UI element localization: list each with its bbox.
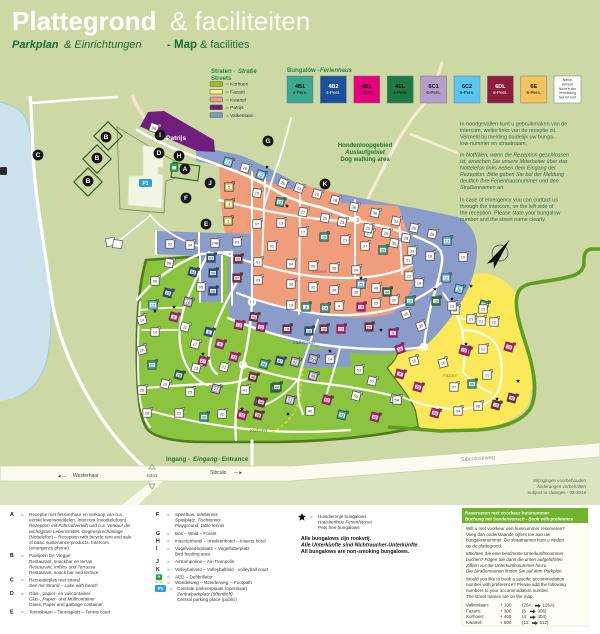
svg-text:& facilities: & facilities	[200, 39, 250, 51]
svg-text:P1: P1	[142, 181, 148, 187]
svg-text:21: 21	[343, 238, 348, 243]
svg-text:30: 30	[202, 416, 206, 420]
svg-text:06: 06	[211, 272, 215, 276]
svg-text:J: J	[156, 559, 159, 565]
svg-text:Subject to changes - 02-2019: Subject to changes - 02-2019	[527, 490, 586, 495]
svg-text:eerste levensmiddelen. Interco: eerste levensmiddelen. Intercom (noodtel…	[29, 518, 127, 523]
svg-text:—►: —►	[234, 470, 243, 475]
svg-text:Patrijs: Patrijs	[166, 135, 186, 142]
svg-text:All bungalows are non-smoking: All bungalows are non-smoking bungalows.	[301, 549, 410, 555]
svg-text:Restaurant, snack bar and terr: Restaurant, snack bar and terrace	[29, 570, 99, 575]
svg-text:Fazant: Fazant	[443, 373, 458, 378]
svg-text:30: 30	[289, 282, 294, 287]
svg-text:18: 18	[417, 281, 422, 286]
svg-text:=: =	[167, 580, 170, 585]
svg-text:(6: (6	[522, 608, 526, 613]
svg-text:Not for rent: Not for rent	[559, 96, 576, 100]
svg-text:14: 14	[323, 307, 327, 311]
svg-text:Would you like to book a speci: Would you like to book a specific accomm…	[466, 576, 565, 581]
svg-text:05: 05	[199, 285, 204, 290]
svg-text:28: 28	[145, 411, 150, 416]
svg-text:Nottelefon links neben dem Ein: Nottelefon links neben dem Eingang der	[460, 166, 556, 172]
svg-text:Vermeld bij melding duidelijk: Vermeld bij melding duidelijk uw bunga-	[460, 135, 555, 141]
svg-text:Parkplan: Parkplan	[12, 39, 59, 51]
svg-text:4-Pers.: 4-Pers.	[393, 90, 408, 95]
svg-text:buchen? Fügen Sie dann die unt: buchen? Fügen Sie dann die unten aufgefü…	[466, 557, 563, 562]
svg-text:In case of emergency you can c: In case of emergency you can contact us	[460, 198, 558, 204]
svg-text:B: B	[104, 134, 109, 141]
svg-text:See mit Strand – Lake with bea: See mit Strand – Lake with beach	[29, 583, 98, 588]
svg-text:Wilt u met voorkeur een huisnu: Wilt u met voorkeur een huisnummer reser…	[466, 526, 565, 531]
svg-text:low-nummer en straatnaam.: low-nummer en straatnaam.	[460, 141, 527, 147]
svg-text:+: +	[158, 575, 161, 581]
svg-text:Eingang: Eingang	[193, 456, 218, 463]
svg-text:13: 13	[279, 221, 284, 226]
svg-text:=: =	[167, 538, 170, 543]
svg-text:numbers to your accommodation: numbers to your accommodation number.	[466, 588, 549, 593]
svg-text:intercom, welke links van de r: intercom, welke links van de receptie zi…	[460, 128, 556, 134]
svg-text:36: 36	[354, 290, 359, 295]
svg-text:=: =	[167, 531, 170, 536]
svg-text:16: 16	[428, 254, 433, 259]
svg-text:13: 13	[445, 240, 449, 244]
svg-text:22: 22	[150, 364, 154, 368]
svg-text:Sibculo: Sibculo	[210, 470, 227, 476]
svg-text:06: 06	[251, 315, 256, 320]
svg-text:Ingang -: Ingang -	[166, 456, 190, 463]
svg-text:Bos – Wald – Forest: Bos – Wald – Forest	[175, 531, 217, 536]
svg-text:(26A: (26A	[522, 603, 532, 608]
svg-text:06: 06	[153, 279, 158, 284]
svg-text:(emergency phone): (emergency phone)	[29, 546, 69, 551]
svg-text:20: 20	[392, 298, 397, 303]
svg-text:39: 39	[381, 249, 385, 253]
svg-text:9: 9	[392, 332, 394, 336]
svg-text:08: 08	[332, 266, 337, 271]
svg-text:12: 12	[444, 277, 448, 281]
svg-text:53: 53	[357, 368, 362, 373]
svg-text:23: 23	[481, 307, 486, 312]
svg-text:+ 300: + 300	[500, 608, 512, 613]
svg-text:B: B	[95, 155, 100, 162]
svg-text:Dog walking area: Dog walking area	[340, 157, 390, 163]
svg-text:Ziffern vor die Unterkunftsnum: Ziffern vor die Unterkunftsnummer hinzu.	[465, 563, 548, 568]
svg-text:Restaurant, Imbiss und Terrass: Restaurant, Imbiss und Terrasse	[29, 564, 96, 569]
svg-text:Voeg dan onderstaande cijfers: Voeg dan onderstaande cijfers toe aan uw	[466, 532, 551, 537]
svg-text:through the intercom, on the l: through the intercom, on the left side o…	[460, 204, 554, 210]
svg-text:=: =	[167, 574, 170, 579]
svg-text:= Korhoen: = Korhoen	[226, 82, 249, 88]
svg-text:22: 22	[492, 320, 497, 325]
svg-text:D: D	[10, 591, 14, 597]
svg-text:Hondenloopgebied: Hondenloopgebied	[338, 143, 393, 149]
svg-text:G: G	[265, 138, 270, 145]
svg-text:306): 306)	[538, 608, 548, 613]
svg-text:=: =	[310, 514, 313, 519]
svg-text:-: -	[167, 39, 171, 51]
svg-text:Zentralparkplatz (öffentlich): Zentralparkplatz (öffentlich)	[176, 592, 233, 597]
svg-text:6-Pers.: 6-Pers.	[426, 90, 441, 95]
svg-text:Centrale parkeerplaats (openba: Centrale parkeerplaats (openbaar)	[177, 586, 248, 591]
svg-text:Insectenhotel – Insektenhotel: Insectenhotel – Insektenhotel – Insects …	[175, 538, 266, 543]
svg-text:H: H	[156, 538, 160, 544]
svg-text:Auslaufgebiet: Auslaufgebiet	[344, 150, 386, 156]
svg-text:Huisdiervrije bungalows: Huisdiervrije bungalows	[318, 514, 367, 519]
svg-text:K: K	[323, 181, 328, 188]
svg-text:09: 09	[470, 383, 474, 387]
svg-text:J: J	[208, 180, 212, 187]
svg-text:29: 29	[322, 328, 326, 332]
svg-text:+ 500: + 500	[500, 620, 512, 625]
svg-text:op de plattegrond.: op de plattegrond.	[466, 543, 502, 548]
svg-text:Die Straßennamen finden Sie au: Die Straßennamen finden Sie auf dem Park…	[466, 569, 563, 574]
svg-text:6-Pers.: 6-Pers.	[460, 90, 475, 95]
svg-text:32: 32	[311, 285, 316, 290]
svg-text:07: 07	[235, 277, 239, 281]
svg-text:In Notfällen, wenn die Rezepti: In Notfällen, wenn die Rezeption geschlo…	[460, 153, 569, 159]
svg-text:21: 21	[406, 258, 411, 263]
svg-text:Rezeption. Bitte geben Sie bei: Rezeption. Bitte geben Sie bei der Meldu…	[460, 172, 564, 178]
svg-text:= Kwartel: = Kwartel	[226, 97, 246, 103]
svg-text:4-Pers.: 4-Pers.	[293, 90, 308, 95]
svg-text:deutlich Ihre Ferienhausnummer: deutlich Ihre Ferienhausnummer und den	[460, 179, 559, 185]
svg-text:03: 03	[209, 257, 213, 261]
svg-text:06: 06	[311, 264, 316, 269]
svg-text:of basic sustenance products.: of basic sustenance products. Intercom	[29, 540, 109, 545]
svg-text:P1: P1	[158, 586, 164, 591]
svg-text:1: 1	[227, 220, 229, 224]
svg-text:=: =	[21, 610, 24, 615]
svg-text:Bird feeding area: Bird feeding area	[175, 552, 210, 557]
svg-text:The street names are on the ma: The street names are on the map.	[466, 594, 534, 599]
svg-text:4-Pers.: 4-Pers.	[360, 90, 375, 95]
svg-text:=: =	[21, 591, 24, 596]
svg-text:13: 13	[277, 200, 282, 205]
svg-text:E: E	[204, 221, 209, 228]
svg-text:04: 04	[289, 262, 294, 267]
svg-text:H: H	[177, 153, 182, 160]
svg-text:23: 23	[339, 328, 343, 332]
svg-text:wichtigsten Lebensmittel. Gege: wichtigsten Lebensmittel. Gegensprechanl…	[29, 529, 123, 534]
svg-text:=: =	[170, 586, 173, 591]
svg-text:Straten -: Straten -	[211, 69, 235, 75]
svg-text:26: 26	[367, 326, 371, 330]
svg-text:6-Pers.: 6-Pers.	[527, 90, 542, 95]
svg-text:Vogelvoederplaats – Vogelfutte: Vogelvoederplaats – Vogelfutterplatz	[175, 546, 250, 551]
svg-text:26: 26	[140, 388, 145, 393]
svg-text:5: 5	[228, 186, 230, 190]
svg-text:23: 23	[177, 411, 182, 416]
svg-text:the reception. Please state yo: the reception. Please state your bungalo…	[460, 211, 560, 217]
svg-text:Haustierfreie Ferienhäuser: Haustierfreie Ferienhäuser	[318, 520, 373, 525]
svg-text:13: 13	[450, 304, 455, 309]
svg-text:K: K	[156, 567, 160, 573]
svg-text:23: 23	[407, 274, 412, 279]
svg-text:03: 03	[256, 278, 261, 283]
svg-text:N341: N341	[147, 473, 158, 478]
svg-text:Pets free bungalows: Pets free bungalows	[318, 525, 360, 530]
svg-text:& Einrichtungen: & Einrichtungen	[64, 39, 142, 51]
svg-text:- Entrance: - Entrance	[218, 456, 249, 463]
svg-text:bungalownummer. De straatnamen: bungalownummer. De straatnamen kunt u vi…	[466, 538, 565, 543]
svg-text:Westerhaar: Westerhaar	[73, 473, 99, 479]
svg-text:B: B	[10, 553, 14, 559]
svg-text:Fazant:: Fazant:	[466, 608, 481, 613]
svg-text:E: E	[10, 610, 14, 616]
svg-text:10: 10	[289, 303, 294, 308]
svg-text:17: 17	[301, 230, 306, 235]
svg-text:Vermietung: Vermietung	[559, 91, 576, 95]
svg-text:44: 44	[385, 291, 389, 295]
svg-text:8: 8	[305, 306, 307, 310]
svg-text:Straße: Straße	[238, 69, 257, 75]
svg-text:=: =	[167, 559, 170, 564]
svg-text:= Valkenlaan: = Valkenlaan	[226, 113, 254, 119]
svg-text:32: 32	[220, 412, 225, 417]
svg-text:512): 512)	[540, 620, 550, 625]
svg-text:(Nottelefon) – Reception with: (Nottelefon) – Reception with bicycle re…	[29, 534, 132, 539]
svg-text:B: B	[86, 178, 91, 185]
svg-text:Volleybalveld – Volleyballfeld: Volleybalveld – Volleyballfeld - volleyb…	[175, 567, 269, 572]
svg-text:Wanderweg: Wanderweg	[204, 580, 229, 585]
svg-text:Valkenlaan:: Valkenlaan:	[466, 603, 489, 608]
svg-text:10: 10	[153, 330, 158, 335]
svg-text:34: 34	[332, 288, 337, 293]
svg-text:AED – Defibrillator: AED – Defibrillator	[175, 574, 213, 579]
svg-text:24: 24	[354, 268, 359, 273]
svg-text:21: 21	[469, 317, 474, 322]
svg-text:C: C	[10, 578, 14, 584]
svg-text:44: 44	[275, 386, 279, 390]
svg-text:=: =	[21, 512, 24, 517]
svg-text:33: 33	[410, 249, 415, 254]
svg-text:02: 02	[270, 244, 275, 249]
svg-text:Spielplatz, Tischtennis: Spielplatz, Tischtennis	[175, 518, 221, 523]
svg-text:12: 12	[258, 325, 263, 330]
svg-text:25: 25	[188, 390, 193, 395]
svg-text:Central parking place (public): Central parking place (public)	[177, 597, 237, 602]
svg-text:= Fazant: = Fazant	[226, 90, 245, 96]
svg-text:=: =	[167, 512, 170, 517]
svg-text:Nicht in der: Nicht in der	[559, 87, 577, 91]
svg-text:+ 100: + 100	[500, 603, 512, 608]
svg-text:G: G	[156, 531, 160, 537]
svg-text:Korhoen:: Korhoen:	[466, 614, 484, 619]
svg-text:10: 10	[434, 300, 438, 304]
svg-text:A: A	[183, 166, 188, 173]
svg-text:04: 04	[188, 243, 193, 248]
svg-text:12: 12	[236, 323, 241, 328]
svg-text:Speeltuin, tafeltennis: Speeltuin, tafeltennis	[175, 512, 218, 517]
svg-text:Bungalow -: Bungalow -	[287, 68, 319, 74]
svg-text:A: A	[10, 512, 14, 518]
svg-text:02: 02	[168, 242, 173, 247]
svg-text:– Footpath: – Footpath	[230, 580, 252, 585]
svg-text:=: =	[21, 578, 24, 583]
svg-text:Streets: Streets	[211, 76, 232, 82]
svg-text:24B: 24B	[211, 241, 218, 246]
svg-text:Restaurant, snackbar en terras: Restaurant, snackbar en terras	[29, 559, 93, 564]
svg-text:Tennisbaan – Tennisplatz – Ten: Tennisbaan – Tennisplatz – Tennis court	[29, 610, 111, 615]
svg-text:◄—: ◄—	[57, 474, 66, 479]
svg-text:F: F	[156, 512, 159, 518]
svg-text:Kwartel: Kwartel	[312, 269, 328, 274]
svg-text:Alle bungalows zijn rookvrij.: Alle bungalows zijn rookvrij.	[301, 536, 372, 542]
svg-text:Glas-, Papier- und Müllcontain: Glas-, Papier- und Müllcontainer	[29, 596, 95, 601]
svg-text:Rezeption mit Fahrradverleih u: Rezeption mit Fahrradverleih und u.a. Ve…	[29, 523, 131, 528]
svg-text:=: =	[167, 546, 170, 551]
svg-text:03: 03	[235, 240, 240, 245]
svg-text:D: D	[157, 150, 162, 157]
svg-text:07: 07	[255, 222, 260, 227]
svg-text:=: =	[167, 567, 170, 572]
svg-text:Reserveren met voorkeur huisnu: Reserveren met voorkeur huisnummer	[465, 511, 549, 516]
svg-text:14: 14	[328, 357, 333, 362]
svg-text:40: 40	[308, 409, 313, 414]
svg-text:Glass, Paper and garbage conta: Glass, Paper and garbage container	[29, 602, 103, 607]
svg-text:number and the street name cle: number and the street name clearly.	[460, 217, 546, 223]
svg-text:Playground, table tennis: Playground, table tennis	[175, 523, 225, 528]
svg-text:Paviljoen De Vlegge: Paviljoen De Vlegge	[29, 553, 71, 558]
svg-text:(12: (12	[522, 620, 529, 625]
svg-text:Kwartel:: Kwartel:	[466, 620, 482, 625]
svg-text:=: =	[21, 553, 24, 558]
svg-text:Buchung mit Sonderwunsch - Boo: Buchung mit Sonderwunsch - Book with pre…	[465, 517, 574, 522]
svg-text:6-Pers.: 6-Pers.	[493, 90, 508, 95]
svg-text:5A: 5A	[395, 398, 400, 403]
svg-text:(4: (4	[522, 614, 526, 619]
svg-text:07: 07	[452, 385, 457, 390]
svg-text:41: 41	[243, 388, 248, 393]
svg-text:number with preference? Please: number with preference? Please add the f…	[466, 582, 566, 587]
svg-text:18: 18	[307, 330, 311, 334]
svg-text:Straßennamen an.: Straßennamen an.	[460, 185, 505, 191]
svg-text:06: 06	[476, 404, 481, 409]
svg-text:21: 21	[479, 319, 484, 324]
svg-text:Airtrampoline – Air-Trampolin: Airtrampoline – Air-Trampolin	[175, 559, 235, 564]
svg-text:05: 05	[236, 258, 240, 262]
svg-text:3: 3	[228, 203, 230, 207]
svg-text:19: 19	[322, 236, 326, 240]
svg-text:ist, erreichen Sie unsere Mita: ist, erreichen Sie unsere Mitarbeiter üb…	[460, 159, 568, 165]
svg-text:Plattegrond: Plattegrond	[12, 6, 156, 36]
svg-text:Glas-, papier- en vuilcontaine: Glas-, papier- en vuilcontainer	[29, 591, 91, 596]
svg-text:126A): 126A)	[543, 603, 556, 608]
svg-text:Änderungen vorbehalten: Änderungen vorbehalten	[536, 483, 587, 489]
svg-text:10: 10	[461, 255, 466, 260]
svg-text:I: I	[159, 132, 161, 139]
svg-text:04: 04	[456, 409, 461, 414]
svg-text:Wandelweg –: Wandelweg –	[175, 580, 203, 585]
svg-text:C: C	[36, 152, 41, 159]
svg-text:Möchten Sie eine bestimmte Unt: Möchten Sie eine bestimmte Unterkunftsnu…	[466, 551, 564, 556]
svg-text:4-Pers.: 4-Pers.	[326, 90, 341, 95]
svg-text:15: 15	[285, 328, 289, 332]
svg-text:= Patrijs: = Patrijs	[226, 105, 244, 111]
svg-text:25: 25	[374, 301, 379, 306]
svg-text:Korhoen: Korhoen	[250, 428, 268, 433]
svg-text:10: 10	[408, 300, 412, 304]
svg-text:37: 37	[363, 244, 368, 249]
svg-text:Map: Map	[174, 39, 197, 51]
svg-text:In noodgevallen kunt u gebruik: In noodgevallen kunt u gebruikmaken van …	[460, 122, 567, 128]
svg-text:01: 01	[256, 260, 261, 265]
svg-text:Alle Unterkünfte sind Nichtrau: Alle Unterkünfte sind Nichtraucher-Unter…	[300, 543, 419, 549]
svg-text:Recreatieplas met strand: Recreatieplas met strand	[29, 578, 81, 583]
svg-text:08: 08	[211, 290, 215, 294]
svg-text:25: 25	[359, 283, 363, 287]
svg-text:& faciliteiten: & faciliteiten	[170, 6, 310, 36]
svg-text:Ferienhaus: Ferienhaus	[320, 68, 353, 74]
svg-text:Niet in: Niet in	[563, 78, 573, 82]
svg-text:18: 18	[359, 306, 363, 310]
svg-text:404): 404)	[538, 614, 548, 619]
svg-text:Wijzigingen voorbehouden: Wijzigingen voorbehouden	[533, 478, 587, 483]
svg-text:F: F	[184, 195, 188, 202]
svg-text:Receptie met fietsverhuur en v: Receptie met fietsverhuur en verkoop van…	[29, 512, 123, 517]
svg-text:48: 48	[374, 286, 379, 291]
svg-text:12: 12	[151, 304, 155, 308]
svg-text:+ 400: + 400	[500, 614, 512, 619]
svg-text:verhuur: verhuur	[562, 82, 574, 86]
svg-text:Valkenlaan: Valkenlaan	[293, 340, 316, 345]
